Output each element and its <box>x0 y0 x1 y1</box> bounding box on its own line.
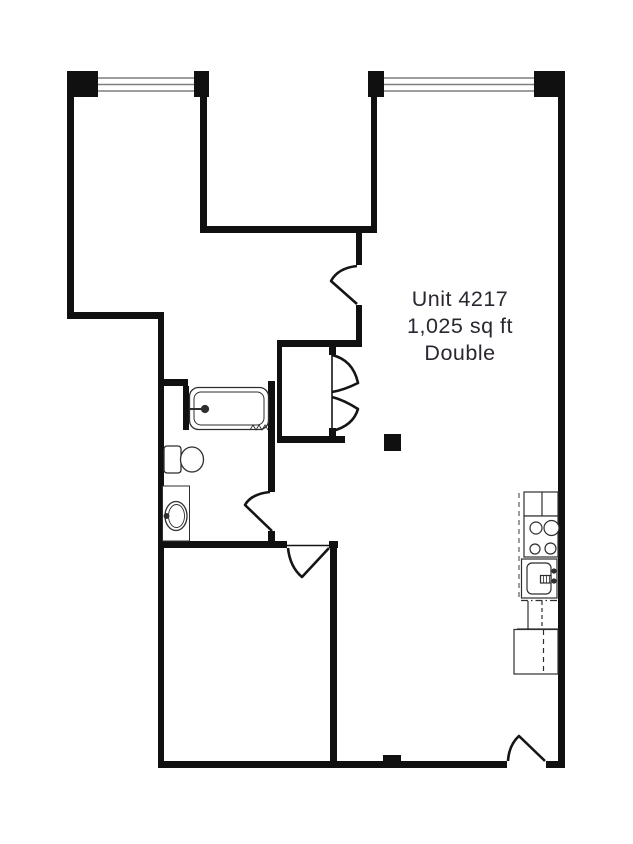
windows <box>98 78 534 91</box>
pillar-top-right-a <box>368 71 384 97</box>
bedroom-right-wall <box>330 541 337 768</box>
step-wall <box>67 312 163 319</box>
floor-plan-canvas <box>0 0 633 844</box>
walls <box>67 71 565 768</box>
left-wall-upper <box>67 96 74 317</box>
bottom-wall-bump <box>383 755 401 762</box>
pillar-top-left-b <box>194 71 209 97</box>
unit-number-text: Unit 4217 <box>360 286 560 313</box>
stove-cooktop-icon <box>524 516 559 557</box>
closet-left-wall <box>277 347 282 439</box>
bedroom-door-swing-icon <box>288 548 329 577</box>
closet-door-lower-icon <box>332 397 358 431</box>
bath-top-wall-stub <box>158 379 188 386</box>
closet-bottom-wall <box>277 436 345 443</box>
kitchen <box>514 492 559 674</box>
structural-column <box>384 434 401 451</box>
floor-plan-page: Unit 4217 1,025 sq ft Double <box>0 0 633 844</box>
window-top-left <box>98 78 194 91</box>
entry-door-swing-icon <box>508 736 545 761</box>
bathroom-door-swing-icon <box>245 492 272 531</box>
bathtub-icon <box>189 388 269 431</box>
right-wall <box>558 96 565 768</box>
closet-door-upper-icon <box>332 355 358 392</box>
hall-wall-upper <box>356 231 362 265</box>
notch-bottom-wall <box>200 226 377 233</box>
closet-top-wall <box>277 340 362 347</box>
unit-label: Unit 4217 1,025 sq ft Double <box>360 286 560 367</box>
pillar-top-left-a <box>67 71 98 97</box>
unit-type-text: Double <box>360 340 560 367</box>
hall-door-swing-icon <box>331 266 357 304</box>
window-top-right <box>384 78 534 91</box>
notch-right-wall <box>371 96 377 229</box>
tub-left-stub <box>183 386 189 430</box>
notch-left-wall <box>200 96 207 231</box>
unit-area-text: 1,025 sq ft <box>360 313 560 340</box>
refrigerator-icon <box>514 630 558 675</box>
bottom-wall-right <box>546 761 565 768</box>
toilet-icon <box>164 446 204 473</box>
kitchen-sink-icon <box>522 559 558 598</box>
vanity-sink-icon <box>163 486 190 541</box>
bathroom-fixtures <box>163 388 269 542</box>
bedroom-top-wall <box>158 541 287 548</box>
pillar-top-right-b <box>534 71 565 97</box>
